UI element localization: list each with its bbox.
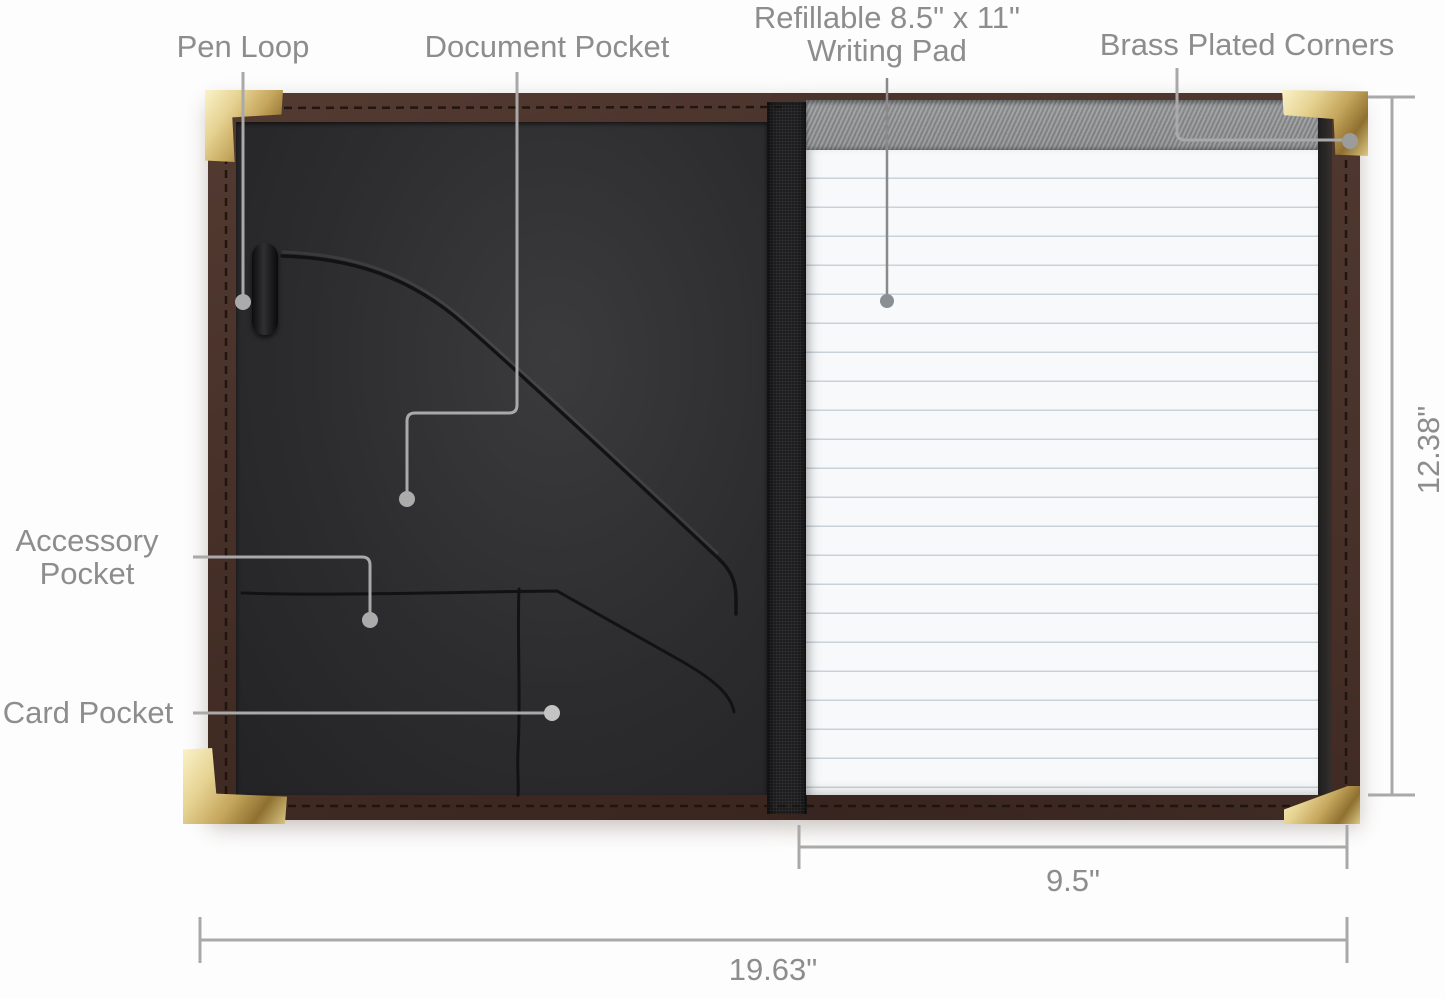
brass-corners-label: Brass Plated Corners <box>1092 28 1402 61</box>
height-dimension-label: 12.38" <box>1409 390 1445 510</box>
interior-panel <box>236 122 767 795</box>
overall-width-dimension-label: 19.63" <box>693 953 853 986</box>
accessory-pocket-label: Accessory Pocket <box>7 524 167 590</box>
accessory-pocket-label-line2: Pocket <box>7 557 167 590</box>
writing-pad-binding-strip <box>806 100 1320 150</box>
document-pocket-label: Document Pocket <box>417 30 677 63</box>
writing-pad-label: Refillable 8.5" x 11" Writing Pad <box>732 1 1042 67</box>
pen-loop <box>252 243 278 335</box>
writing-pad-label-line2: Writing Pad <box>732 34 1042 67</box>
accessory-pocket-label-line1: Accessory <box>7 524 167 557</box>
pad-right-edge <box>1318 102 1332 795</box>
card-pocket-label: Card Pocket <box>0 696 176 729</box>
pad-width-dimension-label: 9.5" <box>1013 864 1133 897</box>
pen-loop-label: Pen Loop <box>163 30 323 63</box>
writing-pad-label-line1: Refillable 8.5" x 11" <box>732 1 1042 34</box>
product-diagram: Pen Loop Document Pocket Refillable 8.5"… <box>0 0 1445 999</box>
writing-pad-paper <box>806 150 1318 795</box>
spine-gusset <box>767 102 807 814</box>
